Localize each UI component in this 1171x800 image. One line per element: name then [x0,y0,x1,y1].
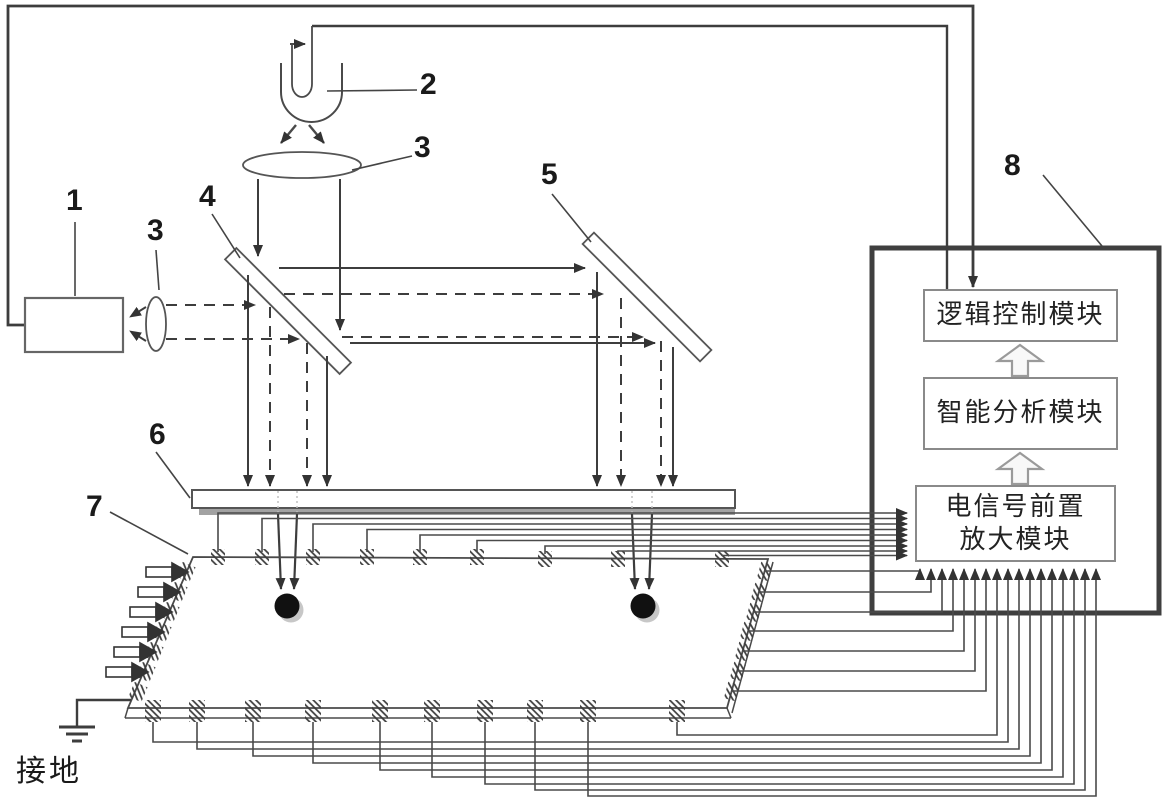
right-electrode-wires [732,569,986,691]
intelligent-analysis-module: 智能分析模块 [923,377,1118,450]
emitted-beam-right [309,125,324,143]
return-beam-into-box1-upper [130,307,146,317]
mirrors [225,233,711,374]
ground-symbol [59,700,131,741]
sample-dots [275,594,660,623]
transparent-plate-6 [192,490,735,508]
ref-label-5: 5 [541,160,558,190]
ref-label-8: 8 [1004,151,1021,181]
dashed-beams [130,294,661,486]
preamp-module: 电信号前置 放大模块 [915,485,1116,562]
return-beam-into-box1-lower [130,331,146,341]
ref-label-1: 1 [66,186,83,216]
source-inner-u [292,26,312,97]
emitted-beam-left [281,125,296,143]
beam-splitter-4 [225,248,351,374]
lens-3-top [243,152,361,178]
ref-label-4: 4 [199,182,216,212]
focus-dot-left [275,594,300,619]
lens-3-left [146,297,166,351]
top-electrode-wires [218,513,907,556]
ref-label-7: 7 [86,492,103,522]
patent-schematic-figure: 1 2 3 4 3 5 6 7 8 逻辑控制模块 智能分析模块 电信号前置 放大… [0,0,1171,800]
preamp-module-label-line1: 电信号前置 [945,491,1085,524]
ground-label: 接地 [16,746,82,790]
focused-beams [278,514,652,589]
detector-box-1 [25,298,123,352]
logic-control-module: 逻辑控制模块 [923,289,1118,342]
flow-arrow-analysis-to-logic [998,345,1042,376]
focus-dot-right [631,594,656,619]
logic-control-module-label: 逻辑控制模块 [936,299,1104,332]
stage-7-outline [125,557,773,718]
flow-arrow-preamp-to-analysis [998,453,1042,484]
outer-loop-wire [8,6,973,325]
intelligent-analysis-module-label: 智能分析模块 [936,397,1104,430]
control-loop-wires [8,6,973,325]
light-source-2 [281,26,342,143]
ref-label-3-left: 3 [147,216,164,246]
ref-label-6: 6 [149,420,166,450]
ref-label-3-top: 3 [414,133,431,163]
plate-gray-strip [199,509,735,515]
preamp-module-label-line2: 放大模块 [959,524,1071,557]
ref-label-2: 2 [420,70,437,100]
